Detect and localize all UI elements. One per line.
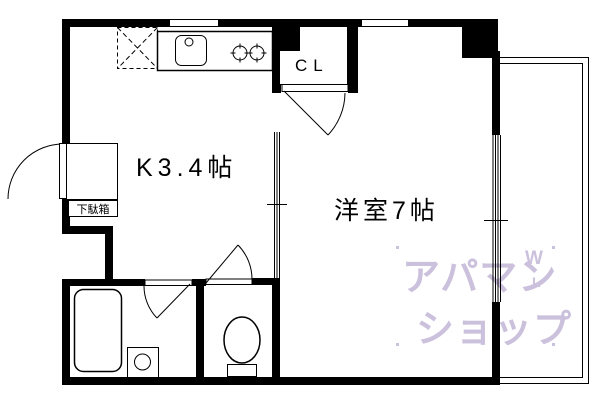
- bathroom: [75, 280, 193, 378]
- watermark-w-mark: W: [525, 248, 543, 269]
- watermark-corner-dot: [396, 343, 399, 346]
- watermark-corner-dot: [552, 343, 555, 346]
- pillar-top-middle-cap: [272, 19, 300, 51]
- closet-label: CL: [295, 56, 329, 75]
- toilet-door-swing-arc: [238, 245, 252, 280]
- closet-door-leaf: [284, 91, 328, 135]
- shoe-cabinet-label: 下駄箱: [77, 202, 110, 216]
- bathtub-icon: [75, 290, 122, 372]
- wall-left-upper: [62, 19, 70, 143]
- bathroom-door-leaf: [157, 284, 190, 318]
- wall-top-d: [408, 19, 462, 27]
- toilet-base-icon: [228, 365, 257, 377]
- closet-door-swing-arc: [328, 93, 345, 135]
- refrigerator-space-icon: [118, 28, 158, 69]
- toilet-door-threshold: [206, 279, 252, 285]
- sliding-door-kitchen-room: [267, 132, 287, 278]
- watermark-corner-dot: [396, 246, 399, 249]
- wall-room-left-lower: [272, 278, 280, 379]
- watermark-l-mark: L: [532, 274, 541, 290]
- toilet-room: [206, 245, 260, 377]
- shoe-cabinet-box: [67, 144, 118, 200]
- counter-outline: [158, 32, 273, 71]
- wall-step-vertical: [105, 226, 113, 282]
- entrance: [8, 144, 67, 200]
- wall-right-upper: [492, 51, 500, 135]
- bathroom-door-swing-arc: [144, 286, 157, 318]
- wall-bath-toilet-divider: [196, 283, 204, 379]
- bathroom-door-threshold: [145, 280, 192, 286]
- apamanshop-watermark: アパマン W L ショップ: [396, 246, 572, 351]
- floorplan-image: アパマン W L ショップ: [0, 0, 600, 400]
- wall-closet-right: [348, 19, 358, 93]
- wall-right-lower: [492, 302, 500, 385]
- faucet-icon: [185, 38, 193, 46]
- closet-door-threshold: [282, 85, 348, 92]
- wall-top-b: [218, 19, 272, 27]
- closet-door: [284, 91, 345, 135]
- window-room-top: [362, 20, 408, 27]
- main-room-label: 洋室7帖: [334, 197, 439, 225]
- toilet-bowl-icon: [224, 317, 260, 363]
- washing-machine-icon: [128, 348, 159, 378]
- window-kitchen-top: [170, 20, 218, 27]
- entrance-door-leaf: [60, 144, 67, 199]
- wall-bath-top-a: [70, 279, 145, 286]
- entrance-door-swing-arc: [8, 144, 63, 199]
- toilet-door-leaf: [206, 245, 238, 283]
- wall-bath-left: [62, 279, 70, 385]
- kitchen-label: K3.4帖: [136, 154, 237, 182]
- wall-top-a: [62, 19, 170, 27]
- kitchen-counter: [158, 32, 273, 71]
- watermark-corner-dot: [552, 246, 555, 249]
